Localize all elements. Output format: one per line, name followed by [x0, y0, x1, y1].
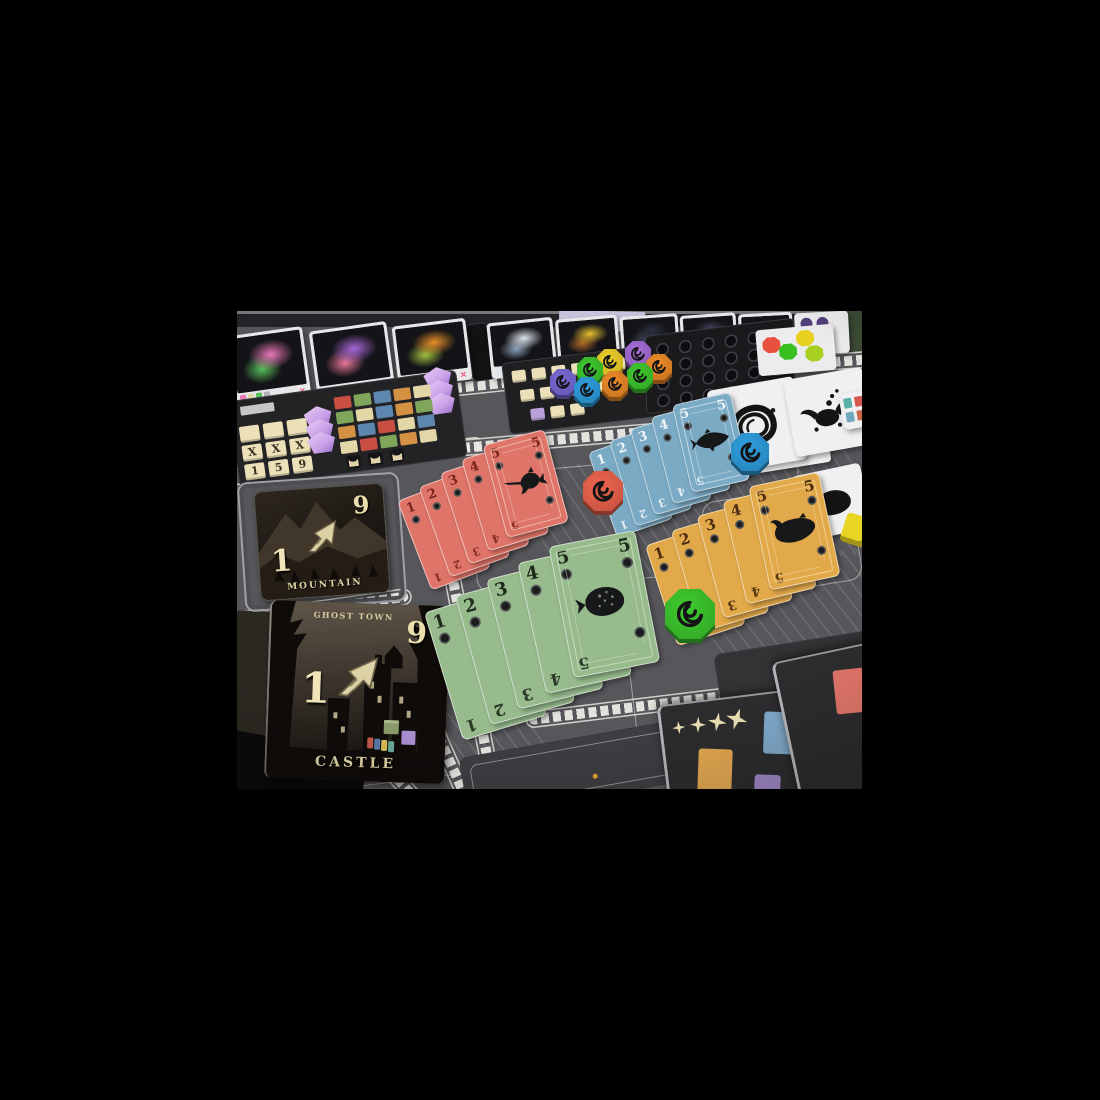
card-rank-number-inverted: 3	[471, 545, 482, 558]
fish-coin-icon	[453, 488, 463, 498]
mountain-max-value: 9	[352, 493, 370, 518]
resource-chip-red	[367, 737, 373, 748]
resource-chip-yellow	[381, 740, 387, 751]
grid-square	[373, 390, 392, 404]
card-rank-number: 2	[616, 441, 629, 456]
cat-icon	[389, 449, 405, 464]
fish-coin-icon	[438, 631, 452, 645]
grid-square	[334, 395, 353, 409]
color-reference-square	[845, 411, 855, 422]
card-rank-number: 3	[493, 580, 510, 600]
reject-mark-x: ✕	[460, 370, 468, 379]
cat-icon	[346, 455, 362, 470]
token-face	[665, 589, 715, 639]
number-tile: X	[289, 437, 311, 456]
objective-slot	[754, 774, 781, 789]
grid-square	[393, 387, 412, 401]
mountain-min-value: 1	[270, 546, 293, 577]
color-reference-square	[843, 398, 853, 409]
swirl-icon	[577, 380, 597, 400]
swirl-icon	[671, 595, 709, 633]
fish-coin-icon	[621, 455, 631, 465]
upgrade-arrow-icon	[331, 646, 385, 706]
sparkle-icon	[672, 720, 686, 734]
fish-coin-icon	[709, 533, 720, 544]
card-rank-number-inverted: 4	[750, 583, 762, 598]
hex-token	[805, 345, 824, 363]
grid-square	[336, 410, 355, 424]
resource-chip-teal	[388, 741, 394, 752]
fish-art-pufferfish	[567, 562, 641, 641]
die-face-icon	[724, 334, 737, 349]
grid-square	[360, 437, 379, 451]
sparkle-icon	[707, 711, 729, 733]
fish-coin-icon	[499, 600, 512, 613]
fish-coin-icon	[529, 584, 542, 597]
token-face	[550, 369, 576, 395]
card-rank-number: 4	[658, 418, 670, 433]
grid-square	[338, 425, 357, 439]
fish-coin-icon	[473, 474, 483, 484]
number-tile: 1	[244, 462, 266, 481]
die-face-icon	[702, 354, 715, 369]
hex-token	[762, 336, 781, 354]
fish-coin-icon	[658, 562, 669, 573]
grid-square	[340, 440, 359, 454]
castle-location-card: GHOST TOWN 9 1 CASTLE	[264, 600, 450, 784]
grid-square	[399, 432, 418, 446]
number-tile: X	[265, 440, 287, 459]
card-rank-number-inverted: 2	[492, 700, 507, 718]
sparkle-icon	[690, 717, 706, 733]
action-square	[520, 389, 535, 403]
card-rank-number-inverted: 1	[619, 518, 630, 531]
grid-square	[355, 407, 374, 421]
card-rank-number: 1	[595, 453, 608, 468]
card-rank-number-inverted: 4	[491, 532, 501, 545]
fish-coin-icon	[468, 615, 482, 629]
pufferfish-icon	[567, 562, 641, 641]
fish-coin-icon	[642, 444, 652, 454]
token-face	[627, 363, 653, 389]
swirl-icon	[600, 352, 620, 372]
number-tile: 5	[268, 459, 290, 478]
card-art-winged-spirit	[312, 324, 391, 387]
swirl-icon	[553, 372, 573, 392]
number-tile	[239, 424, 261, 443]
resource-token	[574, 377, 600, 403]
die-face-icon	[725, 351, 738, 366]
grid-square	[357, 422, 376, 436]
mountain-location-tile: 9 1 MOUNTAIN	[253, 483, 390, 602]
letterbox-background: 9 1 MOUNTAIN 2	[0, 0, 1100, 1100]
die-face-icon	[725, 368, 738, 383]
number-tile	[262, 421, 284, 440]
card-rank-number-inverted: 3	[520, 685, 535, 703]
swirl-icon	[605, 374, 625, 394]
card-rank-number-inverted: 4	[549, 670, 563, 688]
token-face	[602, 371, 628, 397]
action-square	[530, 407, 545, 421]
sparkle-icon	[723, 705, 750, 732]
fish-coin-icon	[734, 519, 745, 530]
grid-square	[375, 405, 394, 419]
board-game-photo: 9 1 MOUNTAIN 2	[237, 311, 862, 789]
resource-chip-blue	[374, 739, 380, 750]
die-face-icon	[679, 373, 692, 388]
grid-square	[413, 384, 432, 398]
hex-token	[795, 329, 814, 347]
resource-chip-green	[384, 720, 399, 735]
action-square	[550, 405, 565, 419]
color-reference-square	[854, 396, 862, 407]
card-art-kraken	[395, 321, 468, 376]
card-rank-number-inverted: 4	[676, 485, 686, 498]
swirl-icon	[588, 476, 618, 506]
card-rank-number: 2	[426, 487, 439, 502]
resource-token	[550, 369, 576, 395]
cat-icon	[368, 452, 384, 467]
card-rank-number: 1	[652, 545, 667, 562]
grid-square	[379, 434, 398, 448]
card-rank-number-inverted: 1	[464, 715, 479, 734]
resource-token	[627, 363, 653, 389]
blue-swirl-token	[731, 433, 769, 471]
card-rank-number: 2	[462, 596, 479, 617]
swirl-icon	[630, 366, 650, 386]
hex-token-card	[755, 324, 837, 377]
castle-min-value: 1	[300, 667, 331, 710]
grid-square	[397, 417, 416, 431]
card-rank-number: 3	[704, 517, 718, 534]
grid-square	[395, 402, 414, 416]
die-face-icon	[702, 371, 715, 386]
number-tile: 9	[292, 455, 314, 474]
card-rank-number-inverted: 3	[726, 597, 738, 612]
token-face	[583, 471, 623, 511]
castle-max-value: 9	[406, 619, 428, 650]
swirl-icon	[628, 344, 648, 364]
grid-square	[377, 419, 396, 433]
die-face-icon	[702, 336, 715, 351]
action-square	[531, 367, 546, 381]
color-reference-square	[856, 409, 862, 420]
fish-coin-icon	[663, 433, 673, 443]
token-face	[574, 377, 600, 403]
card-rank-number: 4	[729, 502, 743, 519]
action-square	[511, 369, 526, 383]
card-rank-number: 1	[431, 612, 448, 633]
fish-coin-icon	[432, 501, 442, 511]
card-rank-number: 4	[468, 460, 480, 475]
die-face-icon	[679, 356, 692, 371]
fish-coin-icon	[684, 547, 695, 558]
card-rank-number: 3	[447, 473, 460, 488]
fish-art-carp	[764, 497, 825, 560]
grid-square	[353, 393, 372, 407]
card-rank-number: 2	[678, 531, 692, 548]
card-art-moth-creature	[237, 329, 307, 393]
objective-slot	[832, 667, 862, 714]
green-swirl-token	[665, 589, 715, 639]
resource-chip-purple	[401, 731, 415, 745]
objective-slot	[697, 748, 733, 789]
fish-coin-icon	[411, 514, 421, 524]
token-face	[731, 433, 769, 471]
hex-token	[778, 343, 797, 361]
carp-icon	[764, 497, 825, 560]
score-pad-icon	[240, 402, 275, 416]
card-rank-number: 3	[637, 430, 649, 445]
number-tile	[286, 418, 308, 437]
number-tile: X	[241, 443, 263, 462]
card-rank-number: 4	[524, 564, 540, 584]
die-face-icon	[679, 339, 692, 354]
grid-square	[419, 429, 438, 443]
grid-square	[415, 399, 434, 413]
swirl-icon	[736, 438, 765, 467]
red-swirl-token	[583, 471, 623, 511]
resource-token	[602, 371, 628, 397]
card-rank-number: 1	[405, 500, 418, 515]
grid-square	[417, 414, 436, 428]
upgrade-arrow-icon	[300, 513, 343, 560]
